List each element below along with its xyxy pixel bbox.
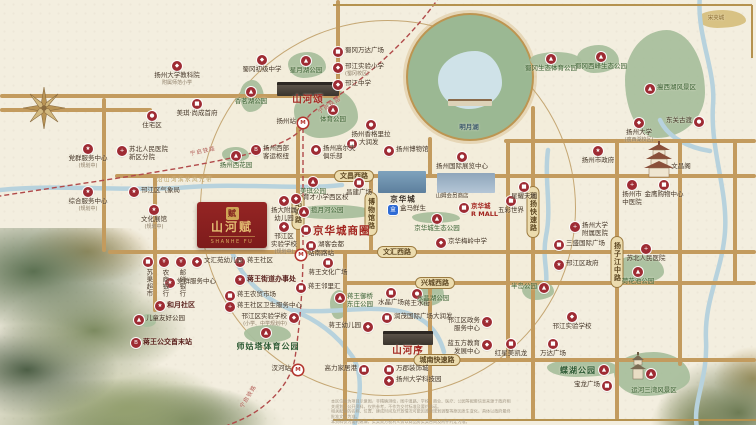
map-label: 蜀冈初级中学 [243,66,282,74]
shop-pin[interactable]: ■ [359,365,369,375]
shop-pin[interactable]: ■ [554,240,564,250]
map-label: 星耀天地 [511,193,537,201]
shop-pin[interactable]: ■ [382,313,392,323]
park-pin[interactable]: ▲ [596,52,606,62]
shop-pin[interactable]: ■ [192,99,202,109]
map-label: 瘦西湖风景区 [657,84,696,92]
map-label: 苏北人民医院 [627,255,666,263]
map-label-sub: (瘦西湖校区) [625,137,654,143]
edu-pin[interactable]: ◆ [192,257,202,267]
project-name: 山河赋 [197,221,267,234]
map-label: 山河颂 [292,94,324,105]
shop-pin[interactable]: ■ [296,283,306,293]
map-label: 儿童友好公园 [146,315,185,323]
map-label: 邗江实验小学(蜀冈校区) [345,63,384,77]
map-label: 湖客会都 [318,241,344,249]
edu-pin[interactable]: ◆ [384,376,394,386]
landmark-pin[interactable]: ● [457,152,467,162]
bus-pin[interactable]: B [251,145,261,155]
wenchang-pavilion-icon [644,140,674,180]
shop-pin[interactable]: ■ [143,257,153,267]
map-label: 荷花池公园 [622,278,655,286]
map-label: 明月湖 [459,124,479,132]
map-label: 运河三湾风景区 [631,387,677,395]
gov-pin[interactable]: ★ [155,301,165,311]
map-label: 文昌阁 [671,163,691,171]
home-pin[interactable]: ● [147,111,157,121]
map-label: 邗江区政务 服务中心 [448,317,481,333]
map-label-sub: (蜀冈校区) [345,71,384,77]
hospital-pin[interactable]: + [225,302,235,312]
park-pin[interactable]: ▲ [633,267,643,277]
map-label: 万达广场 [540,350,566,358]
park-pin[interactable]: ▲ [645,84,655,94]
map-label: 汊河站 [272,365,292,373]
map-label: 邗江中学 [345,80,371,88]
hospital-pin[interactable]: + [627,180,637,190]
edu-pin[interactable]: ◆ [634,118,644,128]
map-label: 蒋王街道办事处 [247,275,296,283]
map-label: 蒋王幼儿园 [329,322,362,330]
landmark-pin[interactable]: ● [694,117,704,127]
shop-pin[interactable]: ■ [301,225,311,235]
edu-pin[interactable]: ◆ [436,238,446,248]
map-label: 文化展馆(规划中) [141,216,167,230]
map-disclaimer: 本区位图为项目示意图，非精确测绘，图中道路、学校、商业、医疗、公园等配套信息来源… [331,399,513,425]
map-label: 星月湖公园 [290,67,323,75]
map-label-sub: (规划中) [141,224,167,230]
map-label: 邗江区政府 [566,260,599,268]
map-label: 扬州大学(瘦西湖校区) [625,129,654,143]
station-pin[interactable]: M [293,365,303,375]
map-label: 京华城 R MALL [471,203,498,219]
map-label: 育才小学西区校 [303,194,349,202]
shop-pin[interactable]: ■ [602,381,612,391]
bank-pin[interactable]: ¥ [159,257,169,267]
map-label: 站南路站 [308,250,334,258]
shop-pin[interactable]: ■ [519,182,529,192]
map-label: 金鹰购物中心 [645,191,684,199]
map-label: 万郡装饰城 [396,365,429,373]
map-label: 山河序 [392,345,424,356]
shop-pin[interactable]: ■ [354,178,364,188]
map-label: 和月社区 [167,301,195,309]
map-label: 蒋王社区 [247,257,273,265]
park-pin[interactable]: ▲ [539,283,549,293]
disclaimer-line: 本区位图为项目示意图，非精确测绘，图中道路、学校、商业、医疗、公园等配套信息来源… [331,399,513,409]
park-pin[interactable]: ▲ [308,177,318,187]
map-label: 三盛国际广场 [566,240,605,248]
map-label: 蝶湖公园 [560,366,596,376]
map-label: 大润发 [359,139,379,147]
map-label: 扬大附属 幼儿园 [271,207,297,223]
map-label: 扬州市 中医院 [622,191,642,207]
map-label: 美琪·尚成首府 [176,110,217,118]
map-label: 蒋王文化广场 [309,269,348,277]
disclaimer-line: 本资料仅为要约邀请，买卖双方权利义务以商品房买卖合同及附件约定为准。 [331,419,513,424]
hospital-pin[interactable]: + [117,146,127,156]
park-pin[interactable]: ▲ [134,315,144,325]
compass-rose-icon [22,86,66,130]
map-label: 京华城生态公园 [414,225,460,233]
gov-pin[interactable]: ★ [554,260,564,270]
map-label: 水晶广场 [378,299,404,307]
map-label: 扬州大学科技园 [396,376,442,384]
shop-pin[interactable]: ■ [333,47,343,57]
project-name-en: SHANHE FU [209,236,255,245]
edu-pin[interactable]: ◆ [257,55,267,65]
map-label: 住宅区 [142,122,162,130]
map-label: 红星美凯龙 [495,350,528,358]
jinghuacheng-mall-building [378,171,426,193]
map-label-sub: 附属师范小学 [154,80,200,86]
gov-pin[interactable]: ★ [83,187,93,197]
map-label: 东关古渡 [666,117,692,125]
road-name-capsule: 兴城西路 [415,277,455,289]
map-label: 蒋王社区卫生服务中心 [237,302,302,310]
project-card-shanhefu[interactable]: 赋 山河赋 SHANHE FU [197,202,267,248]
map-label: 宋夹城 [708,16,725,23]
edu-pin[interactable]: ◆ [482,340,492,350]
hospital-pin[interactable]: + [641,244,651,254]
park-pin[interactable]: ▲ [261,328,271,338]
map-label: 京华城 [390,195,416,204]
map-label: 香茗湖公园 [235,98,268,106]
disclaimer-line: 相关配套的名称、位置、建成时间及开放情况可能因政府规划调整等原因发生变化，具体以… [331,409,513,419]
shop-pin[interactable]: ■ [386,288,396,298]
map-label-sub: (规划中) [69,163,108,169]
map-label: 体育公园 [320,116,346,124]
map-label: 扬州站 [277,118,297,126]
map-label: 蒋王公交首末站 [143,338,192,346]
map-label: 蜀冈万达广场 [345,47,384,55]
map-label: 扬州国际展览中心 [436,163,488,171]
map-label: 党群服务中心 [177,278,216,286]
map-label: 师姑塔体育公园 [237,342,300,352]
map-label: 蒋王邻里汇 [308,283,341,291]
rmall-building [437,173,495,193]
road-name-capsule: 文汇西路 [377,246,417,258]
map-label: 五彩世界 [498,207,524,215]
frame-line [751,5,753,58]
frame-line [333,4,752,6]
map-label: 扬州市政府 [582,157,615,165]
gov-pin[interactable]: ★ [149,205,159,215]
map-label: 润茂国际广场大润发 [394,313,453,321]
gov-pin[interactable]: ★ [593,146,603,156]
map-label: 揽月河公园 [311,207,344,215]
map-label-sub: (小学、中学规划中) [242,321,288,327]
map-label: 昌建广场 [346,189,372,197]
shop-pin[interactable]: ■ [506,339,516,349]
map-label: 扬州高尔夫 俱乐部 [323,145,356,161]
park-pin[interactable]: ▲ [231,151,241,161]
edu-pin[interactable]: ◆ [363,322,373,332]
shop-pin[interactable]: ■ [659,180,669,190]
shanhexu-building [383,331,433,345]
map-label: 邗江实验学校 [553,323,592,331]
map-label: 高力家居港 [325,365,358,373]
map-label: 蒋王御桥 东庄公园 [347,293,373,309]
map-label-sub: (规划中) [271,249,297,255]
shop-pin[interactable]: ■ [384,365,394,375]
map-label: 扬州博物馆 [396,146,429,154]
map-label: 蜀冈西峰生态公园 [575,63,627,71]
gov-pin[interactable]: ★ [129,187,139,197]
map-label: 邗江区气象局 [141,187,180,195]
shop-pin[interactable]: ■ [459,203,469,213]
station-pin[interactable]: M [296,250,306,260]
map-label: 扬州西花园 [220,162,253,170]
map-label: 京华梅岭中学 [448,238,487,246]
edu-pin[interactable]: ◆ [289,313,299,323]
map-label: 蒋王农贸市场 [237,291,276,299]
sanwan-pagoda-icon [630,352,646,380]
bus-pin[interactable]: B [131,338,141,348]
project-seal: 赋 [226,207,239,220]
shop-pin[interactable]: ■ [548,339,558,349]
map-label: 综合服务中心(规划中) [69,198,108,212]
map-label: 苏果超市 [144,269,152,297]
edu-pin[interactable]: ◆ [333,80,343,90]
map-label: 农商银行 [160,269,168,297]
map-label: 山姆会员商店 [435,194,468,201]
station-pin[interactable]: M [298,118,308,128]
gov-pin[interactable]: ★ [83,144,93,154]
shop-pin[interactable]: ■ [323,258,333,268]
park-pin[interactable]: ▲ [301,56,311,66]
park-pin[interactable]: ▲ [299,207,309,217]
landmark-pin[interactable]: ● [384,146,394,156]
map-label: 扬州大学 附属医院 [582,222,608,238]
map-label: 宝龙广场 [574,381,600,389]
park-pin[interactable]: ▲ [546,54,556,64]
hema-pin[interactable]: 盒 [388,205,398,215]
park-pin[interactable]: ▲ [335,293,345,303]
map-label: 邗江区实验学校(小学、中学规划中) [242,313,288,327]
park-pin[interactable]: ▲ [646,369,656,379]
edu-pin[interactable]: ◆ [279,196,289,206]
map-label: 盒马鲜生 [400,205,426,213]
shop-pin[interactable]: ■ [225,291,235,301]
park-pin[interactable]: ▲ [599,365,609,375]
map-label: 扬州西部 客运枢纽 [263,145,289,161]
map-canvas: 赋 山河赋 SHANHE FU 本区位图为项目示意图，非精确测绘，图中道路、学校… [0,0,756,425]
hotel-pin[interactable]: ● [366,120,376,130]
map-label: 蜀冈生态体育公园 [525,65,577,73]
map-label-sub: (规划中) [69,206,108,212]
hospital-pin[interactable]: + [570,222,580,232]
map-label: 沿山河滨水风光带 [157,178,213,185]
bank-pin[interactable]: ¥ [176,257,186,267]
map-label: 苏北人民医院 新区分院 [129,146,168,162]
map-label: 扬州大学教科院附属师范小学 [154,72,200,86]
map-label: 半岛公园 [511,283,537,291]
map-label: 党群服务中心(规划中) [69,155,108,169]
edu-pin[interactable]: ◆ [172,61,182,71]
map-label: 蓝五方教育 发展中心 [448,340,481,356]
gov-pin[interactable]: ★ [482,317,492,327]
map-label: 文汇苑幼儿园 [204,257,243,265]
gov-pin[interactable]: ★ [235,275,245,285]
map-label: 京华城商圈 [313,225,371,238]
edu-pin[interactable]: ◆ [333,63,343,73]
edu-pin[interactable]: ◆ [279,222,289,232]
park-pin[interactable]: ▲ [246,87,256,97]
sport-pin[interactable]: ● [311,145,321,155]
edu-pin[interactable]: ◆ [567,312,577,322]
park-pin[interactable]: ▲ [432,214,442,224]
map-label: 邗江区 实验学校(规划中) [271,233,297,255]
map-label: 水晶湖公园 [417,295,450,303]
